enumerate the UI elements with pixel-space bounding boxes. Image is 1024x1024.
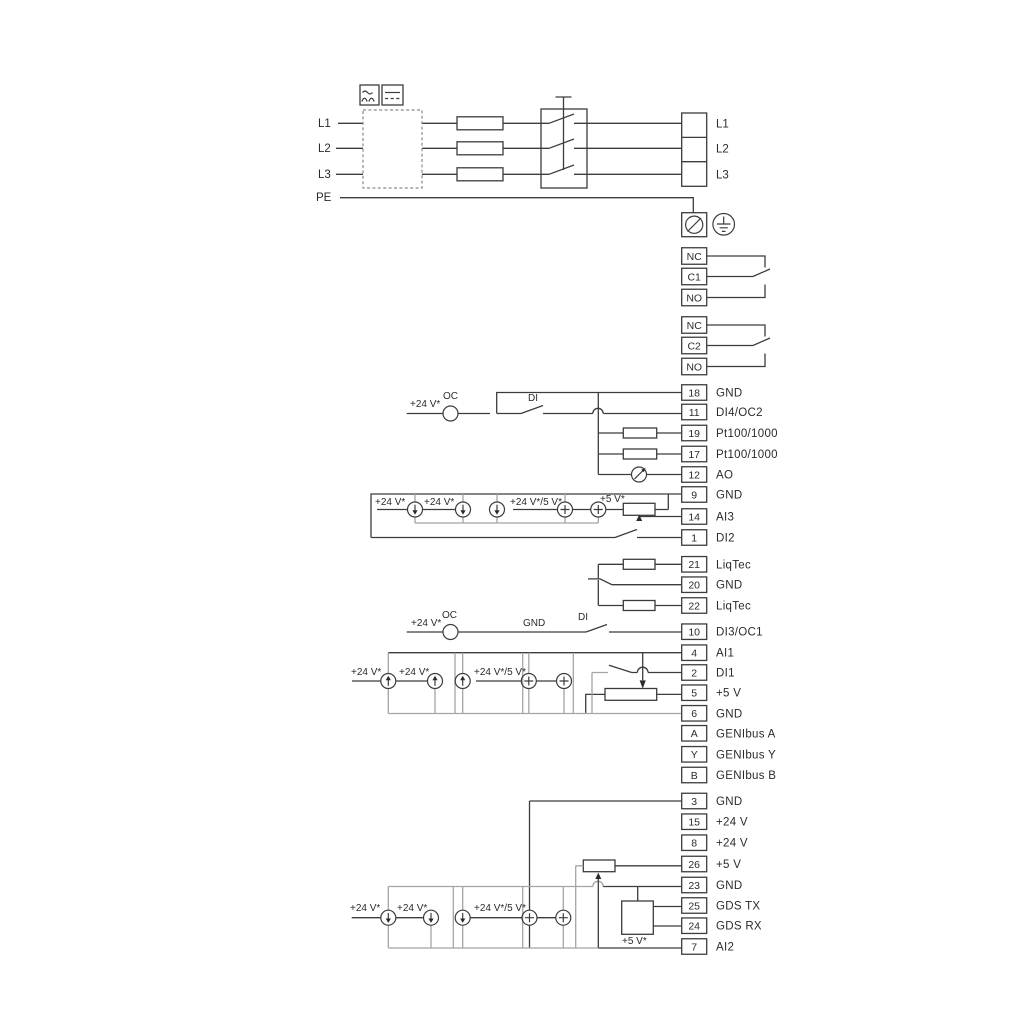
mains-terminal-label: L3: [716, 169, 729, 181]
terminal-label: GENIbus B: [716, 770, 776, 782]
mains-input-label: L1: [318, 118, 331, 130]
liqtec-sensor: [623, 559, 655, 569]
smooth-dc-symbol-box: [382, 85, 403, 105]
terminal-number: 17: [688, 449, 700, 461]
terminal-label: AI2: [716, 942, 734, 954]
setpoint-potentiometer: [583, 860, 615, 872]
mains-input-lines: [336, 123, 693, 212]
setpoint-potentiometer: [605, 689, 657, 701]
di4-switch: [497, 406, 593, 414]
terminal-number: 26: [688, 859, 700, 871]
terminal-label: Pt100/1000: [716, 428, 778, 440]
plus-glyph: [559, 913, 568, 922]
open-collector-symbol: [443, 625, 458, 640]
relay-no-wire: [707, 354, 765, 367]
arrow-head: [386, 676, 391, 680]
terminal-label: +24 V: [716, 838, 748, 850]
terminal-number: 25: [688, 900, 700, 912]
arrow-head: [460, 510, 465, 514]
terminal-label: Pt100/1000: [716, 449, 778, 461]
wiring-diagram: L1L2L3PEL1L2L3NCC1NONCC2NO18GND11DI4/OC2…: [0, 0, 1024, 1024]
liqtec-sensor: [623, 601, 655, 611]
fuse: [457, 142, 503, 155]
terminal-number: 18: [688, 387, 700, 399]
wire-annotation: +24 V*/5 V*: [474, 667, 526, 678]
terminal-label: GND: [716, 708, 742, 720]
arrow-head: [460, 676, 465, 680]
di3-switch: [586, 625, 682, 633]
mains-input-label: L3: [318, 169, 331, 181]
terminal-label: GND: [716, 388, 742, 400]
terminal-label: AI1: [716, 648, 734, 660]
terminal-number: 5: [691, 688, 697, 700]
di2-switch: [371, 530, 682, 538]
terminal-label: GENIbus Y: [716, 749, 776, 761]
terminal-label: +5 V: [716, 688, 741, 700]
terminal-number: A: [691, 728, 698, 740]
main-switch: [541, 97, 587, 188]
gds-sensor-box: [622, 901, 654, 934]
terminal-label: +5 V: [716, 859, 741, 871]
terminal-number: 24: [688, 921, 700, 933]
plus-glyph: [594, 505, 603, 514]
rcd-box: [360, 85, 422, 188]
wire-annotation: +24 V*: [397, 903, 427, 914]
wire-annotation: DI: [528, 393, 538, 404]
terminal-number: 12: [688, 469, 700, 481]
terminal-number: 11: [689, 407, 700, 419]
relay-changeover-contact: [707, 338, 770, 346]
arrow-head: [428, 919, 433, 923]
wire-annotation: +24 V*/5 V*: [474, 903, 526, 914]
wiper-arrow: [640, 680, 646, 688]
mains-input-label: PE: [316, 192, 332, 204]
analog-output-meter: [632, 467, 647, 482]
mains-terminal-label: L2: [716, 143, 729, 155]
wiper-arrow: [595, 873, 601, 879]
fuse: [457, 117, 503, 130]
di1-switch: [609, 665, 637, 672]
terminal-number: 3: [691, 796, 697, 808]
terminal-number: Y: [691, 749, 698, 761]
gds-ai2-wiring: [352, 801, 682, 948]
terminal-number: 14: [688, 511, 700, 523]
wire-annotation: +24 V*: [399, 667, 429, 678]
liqtec-wiring: [588, 559, 682, 610]
terminal-label: DI4/OC2: [716, 407, 763, 419]
relay-terminal-id: NO: [686, 292, 702, 304]
wire-annotation: GND: [523, 618, 545, 629]
arrow-head: [494, 510, 499, 514]
terminal-number: 19: [688, 428, 700, 440]
terminal-label: AO: [716, 470, 733, 482]
relay-terminal-id: NC: [687, 251, 703, 263]
terminal-label: GDS RX: [716, 921, 762, 933]
diagram-canvas: L1L2L3PEL1L2L3NCC1NONCC2NO18GND11DI4/OC2…: [0, 0, 1024, 1024]
terminal-label: LiqTec: [716, 601, 751, 613]
wire-hop: [593, 408, 682, 413]
terminal-number: 9: [691, 489, 697, 501]
wire-annotation: +24 V*: [424, 497, 454, 508]
wire-annotation: +5 V*: [622, 936, 647, 947]
terminal-number: 6: [691, 708, 697, 720]
mains-fuses: [457, 117, 503, 181]
wire-annotation: OC: [442, 610, 457, 621]
plus-glyph: [560, 677, 569, 686]
terminal-label: GND: [716, 490, 742, 502]
terminal-label: GND: [716, 796, 742, 808]
pe-line: [340, 198, 693, 213]
terminal-number: 7: [691, 941, 697, 953]
terminal-number: 4: [691, 648, 697, 660]
terminal-number: 1: [691, 532, 697, 544]
terminal-label: DI1: [716, 668, 735, 680]
open-collector-symbol: [443, 406, 458, 421]
terminal-number: 8: [691, 838, 697, 850]
terminal-number: 2: [691, 667, 697, 679]
mains-terminal-label: L1: [716, 118, 729, 130]
terminal-label: GENIbus A: [716, 728, 776, 740]
terminal-label: DI3/OC1: [716, 627, 763, 639]
fuse: [457, 168, 503, 181]
relay-changeover-contact: [707, 269, 770, 277]
arrow-head: [412, 510, 417, 514]
wire-annotation: +24 V*: [375, 497, 405, 508]
terminal-number: 23: [688, 880, 700, 892]
wire-annotation: OC: [443, 391, 458, 402]
wire-annotation: +24 V*/5 V*: [510, 497, 562, 508]
pulsating-dc-symbol-box: [360, 85, 379, 105]
arrow-head: [432, 676, 437, 680]
terminal-number: 21: [688, 559, 700, 571]
pe-ground-terminals: [682, 213, 735, 237]
terminal-number: B: [691, 770, 698, 782]
terminal-number: 20: [688, 580, 700, 592]
terminal-number: 15: [688, 817, 700, 829]
pt100-sensor: [623, 449, 656, 459]
terminal-label: GND: [716, 880, 742, 892]
mains-terminal-block: [682, 113, 707, 186]
terminal-number: 22: [688, 600, 700, 612]
wire-annotation: +24 V*: [351, 667, 381, 678]
terminal-label: +24 V: [716, 817, 748, 829]
relay-no-wire: [707, 285, 765, 298]
terminal-label: GND: [716, 580, 742, 592]
terminal-label: AI3: [716, 512, 734, 524]
wire-annotation: DI: [578, 612, 588, 623]
ai1-di1-wiring: [352, 653, 682, 714]
pt100-sensor: [623, 428, 656, 438]
plus-glyph: [525, 913, 534, 922]
relay-nc-wire: [707, 325, 765, 337]
terminal-label: GDS TX: [716, 901, 760, 913]
relay-terminal-id: C1: [687, 271, 701, 283]
setpoint-potentiometer: [623, 503, 655, 515]
arrow-head: [460, 919, 465, 923]
relay-terminal-id: C2: [687, 340, 701, 352]
relay-nc-wire: [707, 256, 765, 268]
terminal-number: 10: [688, 627, 700, 639]
relay-terminal-id: NO: [686, 361, 702, 373]
wire-annotation: +24 V*: [410, 399, 440, 410]
wire-annotation: +24 V*: [350, 903, 380, 914]
wire-hop: [637, 667, 682, 672]
wire-annotation: +5 V*: [600, 494, 625, 505]
terminal-label: DI2: [716, 533, 735, 545]
mains-input-label: L2: [318, 143, 331, 155]
arrow-head: [386, 919, 391, 923]
terminal-label: LiqTec: [716, 559, 751, 571]
wire-annotation: +24 V*: [411, 618, 441, 629]
relay-terminal-id: NC: [687, 320, 703, 332]
